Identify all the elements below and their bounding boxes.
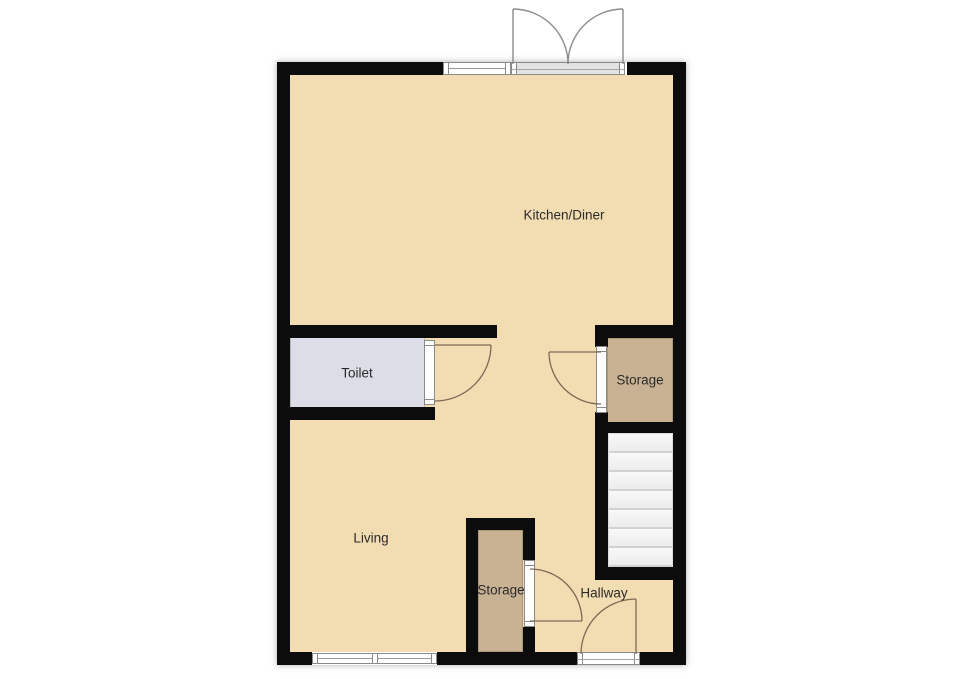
storage-upper-door-frame — [596, 346, 607, 413]
wall-under-stairs — [595, 567, 686, 580]
french-door-right-swing — [568, 9, 623, 64]
staircase-icon — [608, 433, 673, 568]
wall-bottom-right-segment — [640, 652, 686, 665]
wall-left — [277, 62, 290, 665]
front-door-sill — [577, 652, 640, 665]
wall-bottom-left-segment — [277, 652, 312, 665]
door-frame-cap — [596, 346, 607, 352]
door-frame-cap — [511, 62, 517, 75]
window-bottom-icon — [312, 653, 437, 664]
storage-lower-label: Storage — [477, 583, 524, 597]
floorplan-canvas: Kitchen/Diner Toilet Storage Living Stor… — [0, 0, 960, 679]
door-frame-cap — [577, 652, 583, 665]
french-door-sill — [511, 62, 625, 75]
door-frame-cap — [524, 560, 535, 566]
wall-stairs-left — [595, 412, 608, 580]
kitchen-diner-label: Kitchen/Diner — [523, 208, 604, 222]
wall-toilet-bottom — [277, 407, 435, 420]
wall-storage-upper-left-stub — [595, 325, 608, 347]
hallway-label: Hallway — [580, 586, 627, 600]
wall-closet-left — [466, 518, 478, 652]
wall-storage-upper-top — [595, 325, 686, 338]
door-frame-cap — [619, 62, 625, 75]
window-cap — [505, 62, 511, 75]
wall-closet-right-upper-stub — [523, 518, 535, 560]
living-label: Living — [353, 531, 388, 545]
french-door-left-swing — [513, 9, 568, 64]
wall-top-left-segment — [277, 62, 443, 75]
window-cap — [443, 62, 449, 75]
door-frame-cap — [424, 340, 435, 346]
door-frame-cap — [634, 652, 640, 665]
window-cap — [431, 653, 437, 664]
storage-upper-label: Storage — [616, 373, 663, 387]
door-frame-cap — [596, 407, 607, 413]
window-cap — [312, 653, 318, 664]
window-cap — [372, 653, 378, 664]
wall-bottom-middle-segment — [437, 652, 577, 665]
wall-kitchen-divider-left — [277, 325, 497, 338]
wall-closet-right-lower-stub — [523, 627, 535, 652]
wall-storage-upper-bottom — [595, 422, 686, 433]
toilet-label: Toilet — [341, 366, 373, 380]
door-frame-cap — [424, 399, 435, 405]
closet-door-frame — [524, 560, 535, 627]
door-frame-cap — [524, 621, 535, 627]
toilet-door-frame — [424, 340, 435, 405]
window-top-icon — [443, 62, 511, 75]
